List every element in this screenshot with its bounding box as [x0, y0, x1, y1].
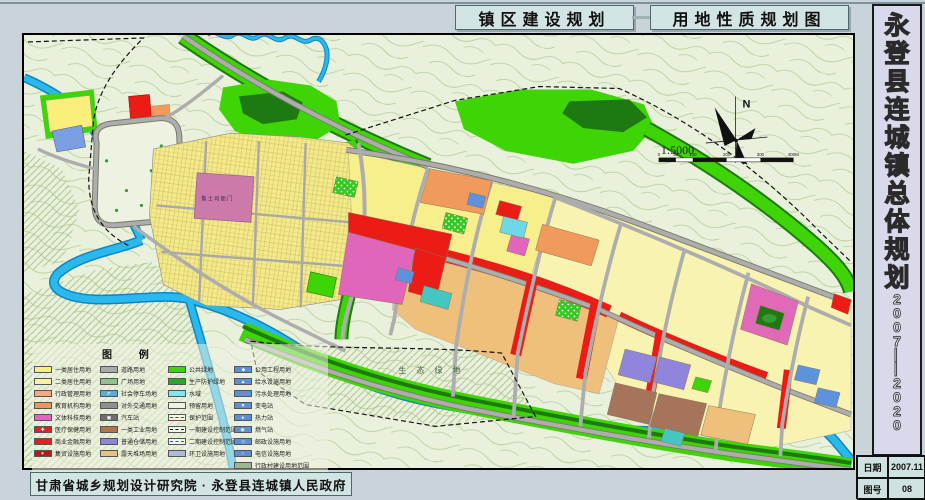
legend-item: 道路用地	[100, 365, 166, 374]
legend-item: ●污水处理用地	[234, 389, 326, 398]
legend-swatch	[168, 426, 186, 433]
legend-label: 公用工程用地	[255, 365, 291, 374]
legend-item: 行政管理用地	[34, 389, 98, 398]
sheet-number-value: 08	[888, 478, 925, 500]
svg-text:400M: 400M	[788, 152, 799, 157]
legend-item: 商业金融用地	[34, 437, 98, 446]
legend-label: 环卫设施用地	[189, 449, 225, 458]
sidebar-title-char: 规	[884, 236, 909, 264]
sidebar-year-char: —	[890, 348, 904, 362]
legend-item: ▲给水设施用地	[234, 377, 326, 386]
title-box-left: 镇区建设规划	[455, 5, 634, 30]
legend-item: 公共绿地	[168, 365, 232, 374]
top-rule	[0, 2, 925, 4]
legend-label: 一类居住用地	[55, 365, 91, 374]
legend-item: ◉燃气站	[234, 425, 326, 434]
sidebar-year-char: 2	[893, 292, 901, 306]
legend-item: 露天堆场用地	[100, 449, 166, 458]
legend-swatch	[100, 402, 118, 409]
legend-swatch	[34, 414, 52, 421]
sidebar-year-char: 0	[893, 390, 901, 404]
sidebar-title-char: 登	[884, 40, 909, 68]
sidebar-title-char: 体	[884, 208, 909, 236]
sidebar-year-char: —	[890, 362, 904, 376]
svg-text:300: 300	[757, 152, 765, 157]
legend-label: 保护范围	[189, 413, 213, 422]
legend-item: 二类居住用地	[34, 377, 98, 386]
title-box-right: 用地性质规划图	[650, 5, 849, 30]
sidebar-year-char: 0	[893, 306, 901, 320]
sheet-number-label: 图号	[857, 478, 888, 500]
legend-item: 行政村建设用地范围	[234, 461, 326, 470]
legend-label: 热力站	[255, 413, 273, 422]
legend-label: 电信设施用地	[255, 449, 291, 458]
legend-label: 行政管理用地	[55, 389, 91, 398]
legend-swatch	[100, 378, 118, 385]
credit-bar: 甘肃省城乡规划设计研究院 · 永登县连城镇人民政府	[30, 472, 352, 496]
legend-label: 普通仓储用地	[121, 437, 157, 446]
legend-panel: 图 例 一类居住用地二类居住用地行政管理用地教育机构用地文体科技用地✚医疗保健用…	[32, 344, 328, 473]
legend-swatch: ○	[234, 450, 252, 457]
legend-item: ◆公用工程用地	[234, 365, 326, 374]
legend-swatch: ▼	[234, 402, 252, 409]
legend-swatch	[168, 366, 186, 373]
svg-text:100: 100	[689, 152, 697, 157]
sidebar-title-char: 永	[884, 12, 909, 40]
sidebar-year-char: 2	[893, 376, 901, 390]
legend-item: ✶集贸设施用地	[34, 449, 98, 458]
old-town: 鲁土司衙门	[149, 133, 358, 309]
legend-item: 普通仓储用地	[100, 437, 166, 446]
legend-swatch: ◇	[234, 438, 252, 445]
sidebar-title-char: 县	[884, 68, 909, 96]
legend-item: ◇邮政设施用地	[234, 437, 326, 446]
legend-label: 污水处理用地	[255, 389, 291, 398]
north-label: N	[743, 98, 751, 110]
legend-label: 广场用地	[121, 377, 145, 386]
legend-item: ✚医疗保健用地	[34, 425, 98, 434]
legend-label: 一期建设控制范围	[189, 425, 237, 434]
sidebar-title-char: 划	[884, 264, 909, 292]
legend-item: ▼变电站	[234, 401, 326, 410]
svg-text:50: 50	[673, 152, 678, 157]
legend-item: 预留用地	[168, 401, 232, 410]
legend-label: 预留用地	[189, 401, 213, 410]
legend-swatch: ✶	[34, 450, 52, 457]
eco-green-label: 生 态 绿 地	[398, 365, 464, 375]
legend-swatch	[34, 402, 52, 409]
legend-swatch	[168, 450, 186, 457]
sidebar-year-char: 0	[893, 418, 901, 432]
legend-item: 二期建设控制范围	[168, 437, 232, 446]
legend-swatch	[34, 438, 52, 445]
legend-swatch	[100, 366, 118, 373]
legend-item: 对外交通用地	[100, 401, 166, 410]
legend-swatch	[168, 390, 186, 397]
legend-columns: 一类居住用地二类居住用地行政管理用地教育机构用地文体科技用地✚医疗保健用地商业金…	[34, 365, 326, 470]
date-value: 2007.11	[888, 456, 925, 478]
legend-item: 广场用地	[100, 377, 166, 386]
date-label: 日期	[857, 456, 888, 478]
legend-swatch	[168, 378, 186, 385]
legend-label: 生产防护绿地	[189, 377, 225, 386]
legend-label: 燃气站	[255, 425, 273, 434]
legend-label: 邮政设施用地	[255, 437, 291, 446]
sidebar-title-char: 连	[884, 96, 909, 124]
legend-swatch: ✚	[34, 426, 52, 433]
legend-swatch: ▣	[100, 414, 118, 421]
legend-label: 一类工业用地	[121, 425, 157, 434]
sidebar-title-char: 镇	[884, 152, 909, 180]
legend-item: 一类工业用地	[100, 425, 166, 434]
legend-label: 道路用地	[121, 365, 145, 374]
legend-label: 医疗保健用地	[55, 425, 91, 434]
sidebar-year-char: 2	[893, 404, 901, 418]
heritage-label: 鲁土司衙门	[201, 194, 233, 202]
legend-item: 文体科技用地	[34, 413, 98, 422]
legend-label: 文体科技用地	[55, 413, 91, 422]
legend-label: 商业金融用地	[55, 437, 91, 446]
legend-swatch: P	[100, 390, 118, 397]
title-connector	[632, 16, 650, 19]
legend-label: 水域	[189, 389, 201, 398]
legend-label: 二类居住用地	[55, 377, 91, 386]
legend-item: 水域	[168, 389, 232, 398]
legend-item: 一类居住用地	[34, 365, 98, 374]
legend-item: P社会停车场地	[100, 389, 166, 398]
legend-swatch	[100, 450, 118, 457]
plan-sheet: 鲁土司衙门	[0, 0, 925, 500]
legend-swatch: ◆	[234, 366, 252, 373]
sidebar-title-char: 城	[884, 124, 909, 152]
legend-item: 生产防护绿地	[168, 377, 232, 386]
legend-swatch	[168, 438, 186, 445]
legend-label: 公共绿地	[189, 365, 213, 374]
legend-label: 变电站	[255, 401, 273, 410]
legend-swatch	[100, 426, 118, 433]
legend-item: ▣汽车站	[100, 413, 166, 422]
legend-item: 保护范围	[168, 413, 232, 422]
legend-item: 环卫设施用地	[168, 449, 232, 458]
legend-label: 露天堆场用地	[121, 449, 157, 458]
legend-label: 二期建设控制范围	[189, 437, 237, 446]
svg-text:200: 200	[723, 152, 731, 157]
legend-item: ○电信设施用地	[234, 449, 326, 458]
legend-swatch: ●	[234, 414, 252, 421]
legend-swatch	[34, 390, 52, 397]
legend-label: 集贸设施用地	[55, 449, 91, 458]
sidebar-title-strip: 永登县连城镇总体规划2007——2020	[872, 4, 922, 456]
sheet-info-table: 日期 2007.11 图号 08	[856, 455, 925, 499]
legend-label: 汽车站	[121, 413, 139, 422]
legend-label: 对外交通用地	[121, 401, 157, 410]
legend-swatch	[34, 366, 52, 373]
legend-swatch	[234, 462, 252, 469]
legend-label: 教育机构用地	[55, 401, 91, 410]
sidebar-year-char: 0	[893, 320, 901, 334]
legend-swatch: ◉	[234, 426, 252, 433]
legend-item: 教育机构用地	[34, 401, 98, 410]
legend-swatch	[168, 414, 186, 421]
legend-swatch	[34, 378, 52, 385]
legend-label: 行政村建设用地范围	[255, 461, 309, 470]
legend-item: 一期建设控制范围	[168, 425, 232, 434]
legend-swatch	[168, 402, 186, 409]
legend-label: 社会停车场地	[121, 389, 157, 398]
sidebar-title-char: 总	[884, 180, 909, 208]
legend-swatch: ●	[234, 390, 252, 397]
sidebar-year-char: 7	[893, 334, 901, 348]
legend-label: 给水设施用地	[255, 377, 291, 386]
legend-item: ●热力站	[234, 413, 326, 422]
legend-swatch: ▲	[234, 378, 252, 385]
legend-title: 图 例	[102, 346, 326, 361]
legend-swatch	[100, 438, 118, 445]
